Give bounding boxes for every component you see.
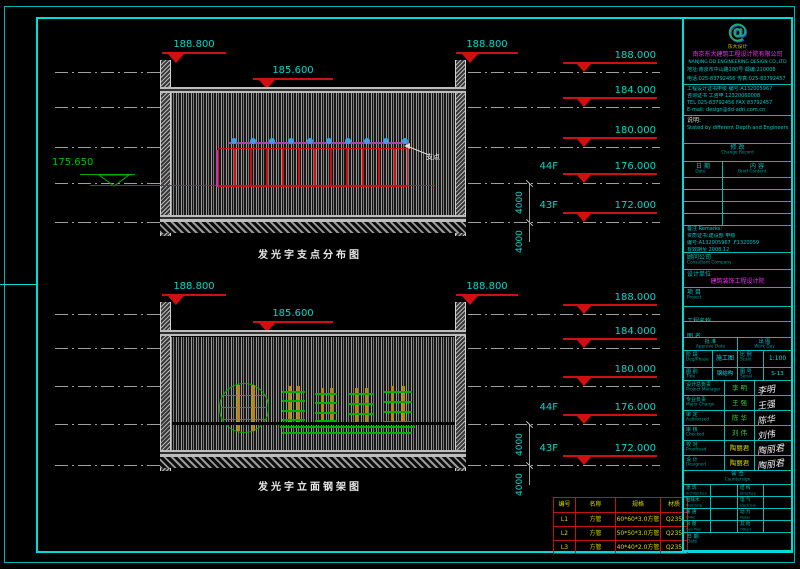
signature-role-label: 设计总负责Project Manager bbox=[684, 381, 724, 395]
company-name-cn: 南京东大建筑工程设计院有限公司 bbox=[684, 50, 791, 59]
facade-bottom-rail bbox=[160, 450, 466, 457]
change-record-header: 修 改 Change Record bbox=[684, 143, 791, 161]
date-row: 日 期 Date bbox=[684, 532, 791, 550]
material-table-cell: 60*60*3.0方管 bbox=[615, 513, 660, 526]
project-label-cn: 项 目 bbox=[687, 289, 788, 296]
scale-label-en: Scale bbox=[740, 358, 758, 362]
project-block: 项 目 Project bbox=[684, 287, 791, 306]
support-pin-icon bbox=[326, 138, 332, 144]
material-table-cell: 规格 bbox=[615, 498, 660, 512]
change-record-empty-row bbox=[684, 213, 791, 225]
support-frame-bar bbox=[378, 148, 380, 187]
note-block: 说明: Stated by different Depth and Engine… bbox=[684, 115, 791, 143]
support-frame-bar bbox=[362, 148, 364, 187]
approve-label-en: Approve Date bbox=[690, 345, 732, 349]
countersign-label: 动 力Power bbox=[737, 509, 763, 520]
signature-row: 审 核Checked刘 伟刘伟 bbox=[684, 425, 791, 440]
countersign-header: 会 签 Countersign bbox=[684, 470, 791, 484]
consultant-block: 顾问公司 Consultant Company bbox=[684, 252, 791, 269]
signature-name: 陈 华 bbox=[724, 411, 754, 425]
material-table-row: L3方管40*40*2.0方管Q235 bbox=[554, 540, 687, 554]
sign-frame-rung bbox=[315, 402, 337, 404]
countersign-blank bbox=[710, 497, 737, 508]
signature-name: 刘 伟 bbox=[724, 426, 754, 440]
company-phone: 电话:025-83792456 传真:025-83792457 bbox=[684, 75, 791, 84]
countersign-blank bbox=[763, 485, 791, 496]
countersign-row: 建 筑Architecture结 构Structure bbox=[684, 484, 791, 496]
sign-logo-line bbox=[221, 395, 267, 396]
countersign-label: 其 他Others bbox=[737, 521, 763, 532]
material-table-cell: L2 bbox=[554, 527, 575, 540]
remarks-line: 编号:A132005967 ,F1320059 bbox=[684, 240, 791, 247]
support-pin-icon bbox=[307, 138, 313, 144]
material-table-header: 编号名称规格材质 bbox=[554, 498, 687, 512]
dimension-value: 4000 bbox=[515, 427, 527, 463]
material-table-cell: 方管 bbox=[575, 541, 615, 554]
countersign-label: 结 构Structure bbox=[737, 485, 763, 496]
designer-label-cn: 设计单位 bbox=[687, 271, 788, 278]
floor-label: 44F bbox=[526, 162, 558, 172]
level-line bbox=[55, 386, 160, 387]
material-table-cell: 编号 bbox=[554, 498, 575, 512]
consultant-label-en: Consultant Company bbox=[687, 261, 773, 265]
change-record-title-en: Change Record bbox=[692, 151, 783, 155]
signature-name: 陶丽君 bbox=[724, 441, 754, 455]
serial-value: S-13 bbox=[763, 368, 791, 380]
countersign-blank bbox=[763, 497, 791, 508]
support-frame-bar bbox=[314, 148, 316, 187]
sign-frame-rung bbox=[315, 393, 337, 395]
signature-script: 李明 bbox=[756, 381, 789, 395]
drawing-caption: 发光字支点分布图 bbox=[225, 246, 395, 261]
level-value: 176.000 bbox=[594, 162, 656, 172]
sign-logo-circle bbox=[219, 383, 269, 433]
level-triangle-icon bbox=[576, 213, 592, 222]
support-pin-icon bbox=[231, 138, 237, 144]
type-value: 钢结构 bbox=[712, 368, 737, 380]
level-value: 184.000 bbox=[594, 327, 656, 337]
level-line bbox=[468, 107, 660, 108]
change-record-rows bbox=[684, 177, 791, 225]
level-value: 176.000 bbox=[594, 403, 656, 413]
support-pin-icon bbox=[383, 138, 389, 144]
support-pin-icon bbox=[288, 138, 294, 144]
phase-scale-row: 阶 段 Deg/Phase 施工图 比 例 Scale 1:100 bbox=[684, 350, 791, 367]
sign-logo-line bbox=[221, 407, 267, 408]
dimension-line bbox=[529, 183, 530, 222]
datum-value: 175.650 bbox=[52, 158, 102, 168]
level-line bbox=[468, 222, 660, 223]
level-line bbox=[468, 314, 660, 315]
level-line bbox=[55, 107, 160, 108]
signature-script: 陶丽君 bbox=[756, 456, 789, 470]
workday-label-en: Work Day bbox=[744, 345, 786, 349]
level-line bbox=[468, 147, 660, 148]
facade-bottom-rail bbox=[160, 215, 466, 222]
level-value: 180.000 bbox=[594, 365, 656, 375]
facade-column-right bbox=[455, 302, 466, 471]
leader-note: 支点 bbox=[426, 152, 450, 162]
countersign-blank bbox=[763, 521, 791, 532]
countersign-label: 电 气Electrical bbox=[737, 497, 763, 508]
elevation-value: 188.800 bbox=[162, 282, 226, 292]
sign-frame-rung bbox=[282, 391, 305, 393]
support-frame-bar bbox=[282, 148, 284, 187]
certificate-line: E-mail: design@dd-adri.com.cn bbox=[684, 107, 791, 114]
signature-row: 设 计Designed陶丽君陶丽君 bbox=[684, 455, 791, 470]
level-triangle-icon bbox=[576, 63, 592, 72]
level-line bbox=[55, 424, 160, 425]
floor-label: 43F bbox=[526, 201, 558, 211]
level-value: 172.000 bbox=[594, 444, 656, 454]
level-line bbox=[55, 72, 160, 73]
signature-role-label: 审 核Checked bbox=[684, 426, 724, 440]
support-pin-icon bbox=[345, 138, 351, 144]
note-label: 说明: bbox=[684, 116, 791, 125]
sign-frame-rung bbox=[348, 403, 374, 405]
signature-name: 王 强 bbox=[724, 396, 754, 410]
remarks-line: 资质证书:建设部 甲级 bbox=[684, 233, 791, 240]
drgtitle-block: 图 名 C2-13 bbox=[684, 321, 791, 337]
facade-bottom-hatch bbox=[160, 457, 466, 468]
sign-logo-line bbox=[221, 419, 267, 420]
sign-frame-rung bbox=[282, 410, 305, 412]
countersign-label: 总 图Gen Plan bbox=[684, 521, 710, 532]
logo-section: @ bbox=[684, 19, 791, 44]
level-value: 180.000 bbox=[594, 126, 656, 136]
dimension-value: 4000 bbox=[515, 227, 527, 257]
signature-role-label: 专业负责Major Charge bbox=[684, 396, 724, 410]
facade-top-rail bbox=[160, 330, 466, 336]
countersign-label: 给排水Plumbing bbox=[684, 497, 710, 508]
elevation-value: 188.800 bbox=[456, 282, 518, 292]
countersign-blank bbox=[710, 509, 737, 520]
level-triangle-icon bbox=[576, 377, 592, 386]
signature-row: 审 定Authorized陈 华陈华 bbox=[684, 410, 791, 425]
certificate-block: 工程设计证书甲级 编号:A132005967咨询证书 工咨甲 123200600… bbox=[684, 84, 791, 115]
sign-base-line bbox=[280, 426, 415, 428]
support-frame-bar bbox=[330, 148, 332, 187]
sign-frame-rung bbox=[384, 401, 412, 403]
countersign-row: 总 图Gen Plan其 他Others bbox=[684, 520, 791, 532]
elevation-value: 188.800 bbox=[162, 40, 226, 50]
signature-script: 刘伟 bbox=[756, 426, 789, 440]
level-triangle-icon bbox=[576, 174, 592, 183]
facade-bottom-hatch bbox=[160, 222, 466, 233]
support-frame-bar bbox=[298, 148, 300, 187]
countersign-row: 暖 通HVAC动 力Power bbox=[684, 508, 791, 520]
level-line bbox=[468, 465, 660, 466]
signature-name: 李 明 bbox=[724, 381, 754, 395]
countersign-blank bbox=[763, 509, 791, 520]
level-line bbox=[55, 465, 160, 466]
elevation-value: 185.600 bbox=[253, 66, 333, 76]
floor-label: 44F bbox=[526, 403, 558, 413]
level-value: 188.000 bbox=[594, 293, 656, 303]
support-pin-icon bbox=[364, 138, 370, 144]
note-text: Stated by different Depth and Engineers bbox=[684, 125, 791, 132]
phase-value: 施工图 bbox=[712, 351, 737, 367]
remarks-block: 备注 Remarks: 资质证书:建设部 甲级编号:A132005967 ,F1… bbox=[684, 225, 791, 252]
serial-label-en: Serial bbox=[740, 375, 758, 379]
support-frame-bar bbox=[234, 148, 236, 187]
designer-value: 建筑装饰工程设计院 bbox=[687, 278, 788, 286]
sign-frame-rung bbox=[384, 391, 412, 393]
remarks-label: 备注 Remarks: bbox=[684, 226, 791, 233]
col-date-en: Date bbox=[686, 170, 715, 174]
dimension-value: 4000 bbox=[515, 185, 527, 221]
countersign-blank bbox=[710, 485, 737, 496]
material-table-row: L1方管60*60*3.0方管Q235 bbox=[554, 512, 687, 526]
floor-label: 43F bbox=[526, 444, 558, 454]
support-frame-bar bbox=[394, 148, 396, 187]
signature-row: 设计总负责Project Manager李 明李明 bbox=[684, 380, 791, 395]
material-table-cell: 方管 bbox=[575, 527, 615, 540]
level-line bbox=[468, 72, 660, 73]
company-address: 地址:南京市中山路100号 邮编:210008 bbox=[684, 66, 791, 75]
elevation-value: 185.600 bbox=[253, 309, 333, 319]
sign-frame-rung bbox=[282, 419, 305, 421]
sign-frame-rung bbox=[348, 413, 374, 415]
material-table-cell: 40*40*2.0方管 bbox=[615, 541, 660, 554]
countersign-blank bbox=[710, 521, 737, 532]
certificate-line: TEL 025-83792456 FAX 83792457 bbox=[684, 100, 791, 107]
drgname-block: 工程名称 紫峰大厦,南京 bbox=[684, 306, 791, 321]
leader-arrow-icon bbox=[404, 143, 410, 149]
phase-label-en: Deg/Phase bbox=[686, 358, 706, 362]
level-value: 188.000 bbox=[594, 51, 656, 61]
remarks-lines: 资质证书:建设部 甲级编号:A132005967 ,F1320059有效期至 2… bbox=[684, 233, 791, 252]
support-pin-icon bbox=[250, 138, 256, 144]
level-line bbox=[468, 348, 660, 349]
countersign-row: 给排水Plumbing电 气Electrical bbox=[684, 496, 791, 508]
change-record-columns: 日 期 Date 内 容 Brief Content bbox=[684, 161, 791, 177]
countersign-rows: 建 筑Architecture结 构Structure给排水Plumbing电 … bbox=[684, 484, 791, 532]
level-triangle-icon bbox=[576, 339, 592, 348]
material-table-cell: L3 bbox=[554, 541, 575, 554]
dimension-value: 4000 bbox=[515, 470, 527, 500]
type-label-en: Title bbox=[686, 375, 706, 379]
level-line bbox=[468, 183, 660, 184]
level-line bbox=[55, 147, 160, 148]
support-frame-bar bbox=[250, 148, 252, 187]
scale-value: 1:100 bbox=[763, 351, 791, 367]
level-line bbox=[468, 424, 660, 425]
sign-frame-rung bbox=[315, 412, 337, 414]
sign-frame-rung bbox=[348, 393, 374, 395]
material-table: 编号名称规格材质L1方管60*60*3.0方管Q235L2方管50*50*3.0… bbox=[553, 497, 688, 554]
level-line bbox=[55, 314, 160, 315]
sign-frame-rung bbox=[384, 411, 412, 413]
signature-rows: 设计总负责Project Manager李 明李明专业负责Major Charg… bbox=[684, 380, 791, 470]
change-record-empty-row bbox=[684, 177, 791, 189]
dimension-line bbox=[529, 424, 530, 465]
support-frame-bar bbox=[346, 148, 348, 187]
support-pin-icon bbox=[269, 138, 275, 144]
level-value: 184.000 bbox=[594, 86, 656, 96]
level-line bbox=[55, 222, 160, 223]
signature-row: 校 对Proofread陶丽君陶丽君 bbox=[684, 440, 791, 455]
countersign-label: 建 筑Architecture bbox=[684, 485, 710, 496]
material-table-cell: 50*50*3.0方管 bbox=[615, 527, 660, 540]
level-triangle-icon bbox=[576, 305, 592, 314]
level-triangle-icon bbox=[576, 456, 592, 465]
sign-frame-rung bbox=[282, 400, 305, 402]
elevation-value: 188.800 bbox=[456, 40, 518, 50]
signature-script: 陶丽君 bbox=[756, 441, 789, 455]
signature-role-label: 审 定Authorized bbox=[684, 411, 724, 425]
material-table-cell: L1 bbox=[554, 513, 575, 526]
date-label-en: Date bbox=[687, 540, 773, 544]
designer-block: 设计单位 建筑装饰工程设计院 bbox=[684, 269, 791, 287]
support-frame-bar bbox=[266, 148, 268, 187]
level-line bbox=[468, 386, 660, 387]
approve-row: 批 准 Approve Date 出 图 Work Day bbox=[684, 337, 791, 350]
cad-sheet: 188.000184.000180.000176.00044F172.00043… bbox=[0, 0, 800, 569]
signature-script: 王强 bbox=[756, 396, 789, 410]
signature-role-label: 校 对Proofread bbox=[684, 441, 724, 455]
signature-name: 陶丽君 bbox=[724, 456, 754, 470]
title-block: @ 东大设计 南京东大建筑工程设计院有限公司 NANJING DD ENGINE… bbox=[682, 17, 793, 552]
type-serial-row: 图 别 Title 钢结构 图 号 Serial S-13 bbox=[684, 367, 791, 380]
level-triangle-icon bbox=[576, 138, 592, 147]
material-table-cell: 方管 bbox=[575, 513, 615, 526]
level-triangle-icon bbox=[576, 98, 592, 107]
material-table-row: L2方管50*50*3.0方管Q235 bbox=[554, 526, 687, 540]
level-line bbox=[55, 348, 160, 349]
sign-base-line bbox=[282, 432, 412, 434]
change-record-empty-row bbox=[684, 201, 791, 213]
company-logo-at-icon: @ bbox=[728, 19, 748, 43]
signature-row: 专业负责Major Charge王 强王强 bbox=[684, 395, 791, 410]
facade-column-left bbox=[160, 302, 171, 471]
signature-role-label: 设 计Designed bbox=[684, 456, 724, 470]
dimension-line bbox=[529, 465, 530, 485]
level-value: 172.000 bbox=[594, 201, 656, 211]
signature-script: 陈华 bbox=[756, 411, 789, 425]
level-triangle-icon bbox=[576, 415, 592, 424]
dimension-line bbox=[529, 222, 530, 242]
certificate-line: 工程设计证书甲级 编号:A132005967 bbox=[684, 86, 791, 93]
sign-base-band bbox=[172, 422, 455, 425]
drawing-caption: 发光字立面钢架图 bbox=[225, 478, 395, 493]
countersign-label: 暖 通HVAC bbox=[684, 509, 710, 520]
material-table-cell: 名称 bbox=[575, 498, 615, 512]
countersign-title-en: Countersign bbox=[692, 478, 783, 482]
col-content-en: Brief Content bbox=[725, 170, 779, 174]
change-record-empty-row bbox=[684, 189, 791, 201]
certificate-line: 咨询证书 工咨甲 12320060008 bbox=[684, 93, 791, 100]
company-name-en: NANJING DD ENGINEERING DESIGN CO.,LTD bbox=[684, 59, 791, 66]
project-label-en: Project bbox=[687, 296, 773, 300]
